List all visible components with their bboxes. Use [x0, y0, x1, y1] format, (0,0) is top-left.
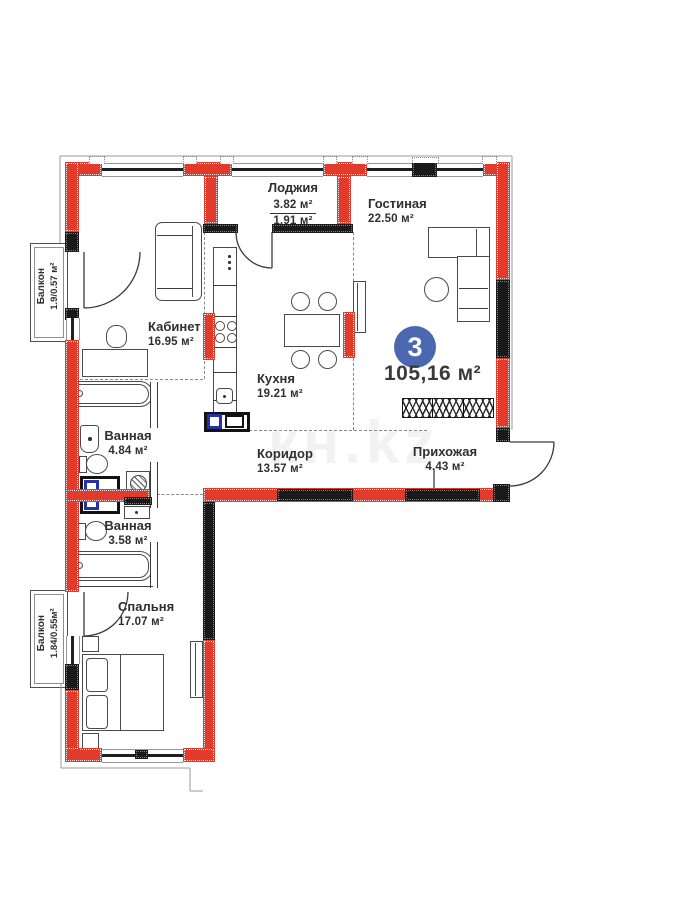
door-arc-bedroom-balcony — [84, 592, 128, 636]
door-arc-entry — [510, 442, 554, 486]
door-arc-loggia — [236, 232, 272, 268]
doors-and-facade-overlay — [0, 0, 675, 900]
facade-line-top — [60, 156, 512, 430]
door-arc-office-balcony — [84, 252, 140, 308]
facade-line-bottom — [61, 684, 203, 791]
floorplan-canvas: кн.kz — [0, 0, 675, 900]
